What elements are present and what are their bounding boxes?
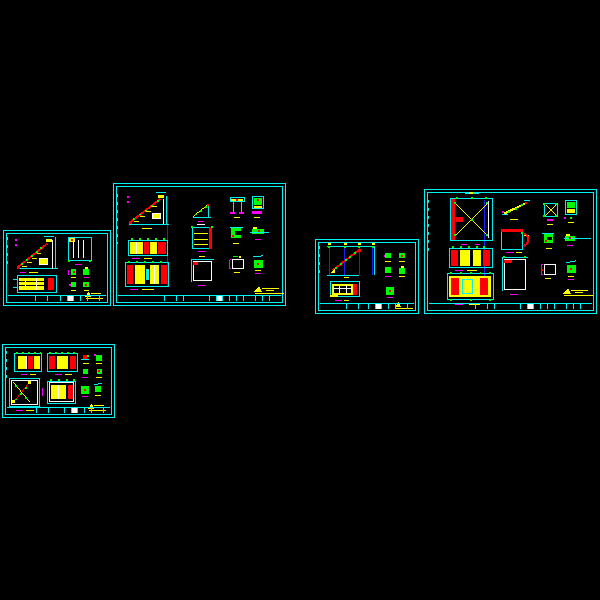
panel-section-detail xyxy=(47,379,75,407)
wall-section-detail-2 xyxy=(125,261,168,290)
sheet-center-large xyxy=(113,183,286,306)
band-section-detail-1 xyxy=(14,352,41,374)
node-detail-3 xyxy=(69,282,77,291)
stair-section-detail xyxy=(15,237,58,273)
section-detail-mid xyxy=(449,246,492,271)
connection-detail-2 xyxy=(564,201,577,223)
connection-detail-4 xyxy=(250,227,269,239)
title-block-cells-left xyxy=(36,408,55,413)
connection-detail-5 xyxy=(230,256,244,273)
stair-elevation-detail xyxy=(127,193,169,228)
connection-detail-5 xyxy=(541,265,555,279)
title-block xyxy=(429,303,592,309)
slab-panel-detail xyxy=(330,282,359,300)
portal-frame-detail-1 xyxy=(501,229,529,253)
node-detail-3 xyxy=(82,369,88,377)
title-block-cells-right xyxy=(520,304,592,309)
node-detail-4 xyxy=(399,266,405,277)
title-block-cells-left xyxy=(164,296,190,301)
node-detail-3 xyxy=(385,267,391,276)
sheet-left-small xyxy=(3,230,111,306)
title-block-cells-right xyxy=(64,408,110,413)
connection-detail-3 xyxy=(542,233,554,248)
node-detail-5 xyxy=(81,386,89,397)
approval-stamp xyxy=(561,286,595,296)
square-frame-detail xyxy=(191,257,214,286)
diagonal-brace-detail xyxy=(502,201,530,220)
title-block-cells-right xyxy=(209,296,281,301)
node-detail-2 xyxy=(399,253,405,262)
node-detail-2 xyxy=(83,267,89,278)
braced-frame-elevation xyxy=(451,192,492,244)
cad-preview-canvas xyxy=(0,0,600,600)
connection-detail-3 xyxy=(230,227,244,243)
node-detail-2 xyxy=(94,354,102,364)
title-block-cells-left xyxy=(346,304,365,309)
node-detail-1 xyxy=(69,269,77,278)
frame-detail xyxy=(68,238,91,264)
section-detail-bottom xyxy=(447,272,493,304)
connection-detail-6 xyxy=(253,256,263,274)
title-block xyxy=(118,295,281,301)
connection-detail-6 xyxy=(566,261,576,280)
title-block-cells-right xyxy=(368,304,414,309)
sheet-right-large xyxy=(424,189,597,314)
connection-detail-4 xyxy=(564,234,591,245)
sheet-middle-small xyxy=(315,239,419,314)
node-detail-1 xyxy=(384,253,392,262)
node-detail-6 xyxy=(94,383,102,396)
title-block xyxy=(8,295,106,301)
title-block-cells-right xyxy=(60,296,106,301)
portal-frame-detail-2 xyxy=(502,256,528,294)
beam-plan-detail xyxy=(13,276,56,295)
approval-stamp xyxy=(252,284,286,294)
stair-plan-detail xyxy=(327,243,375,278)
connection-detail-2 xyxy=(252,197,264,218)
node-detail-5 xyxy=(386,287,394,298)
sheet-bottom-small xyxy=(2,344,115,418)
title-block-cells-left xyxy=(475,304,501,309)
node-detail-4 xyxy=(96,369,102,377)
title-block-cells-left xyxy=(35,296,54,301)
braced-panel-detail xyxy=(9,378,42,410)
band-section-detail-2 xyxy=(47,352,77,374)
wall-section-detail-1 xyxy=(128,238,167,259)
connection-detail-1 xyxy=(230,198,244,218)
node-detail-1 xyxy=(81,355,89,364)
title-block xyxy=(320,303,414,309)
title-block xyxy=(7,407,110,413)
connection-detail-1 xyxy=(543,203,557,225)
ladder-section-detail xyxy=(191,224,213,252)
bracket-detail xyxy=(193,204,211,222)
